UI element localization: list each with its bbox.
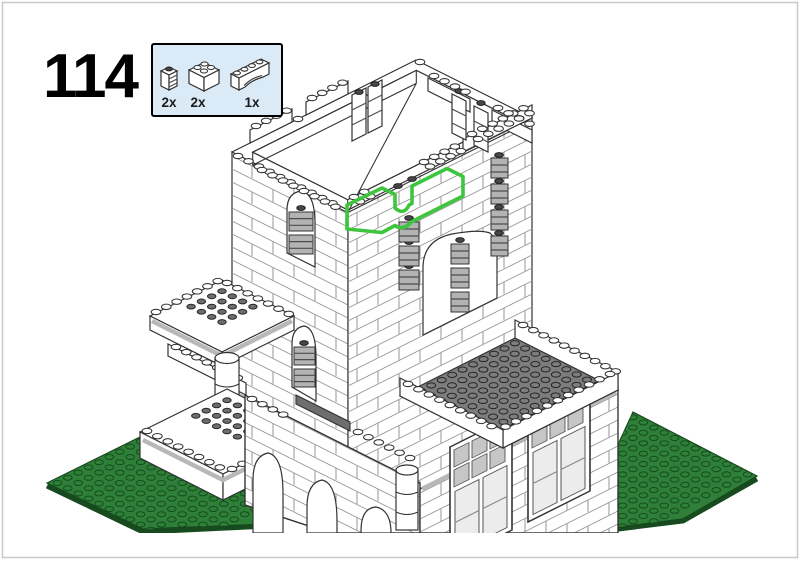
colonnade-arch xyxy=(253,453,283,533)
instruction-illustration: 114 xyxy=(0,0,800,566)
parts-callout: 2x 2x 1x xyxy=(152,44,282,116)
part-count: 2x xyxy=(190,95,206,110)
instruction-page: 114 xyxy=(0,0,800,566)
part-count: 2x xyxy=(161,95,177,110)
part-count: 1x xyxy=(244,95,260,110)
brick-1x1-with-grille-icon xyxy=(161,67,177,90)
step-number: 114 xyxy=(43,42,140,111)
step-header: 114 xyxy=(43,42,282,116)
porch-column xyxy=(396,465,418,530)
